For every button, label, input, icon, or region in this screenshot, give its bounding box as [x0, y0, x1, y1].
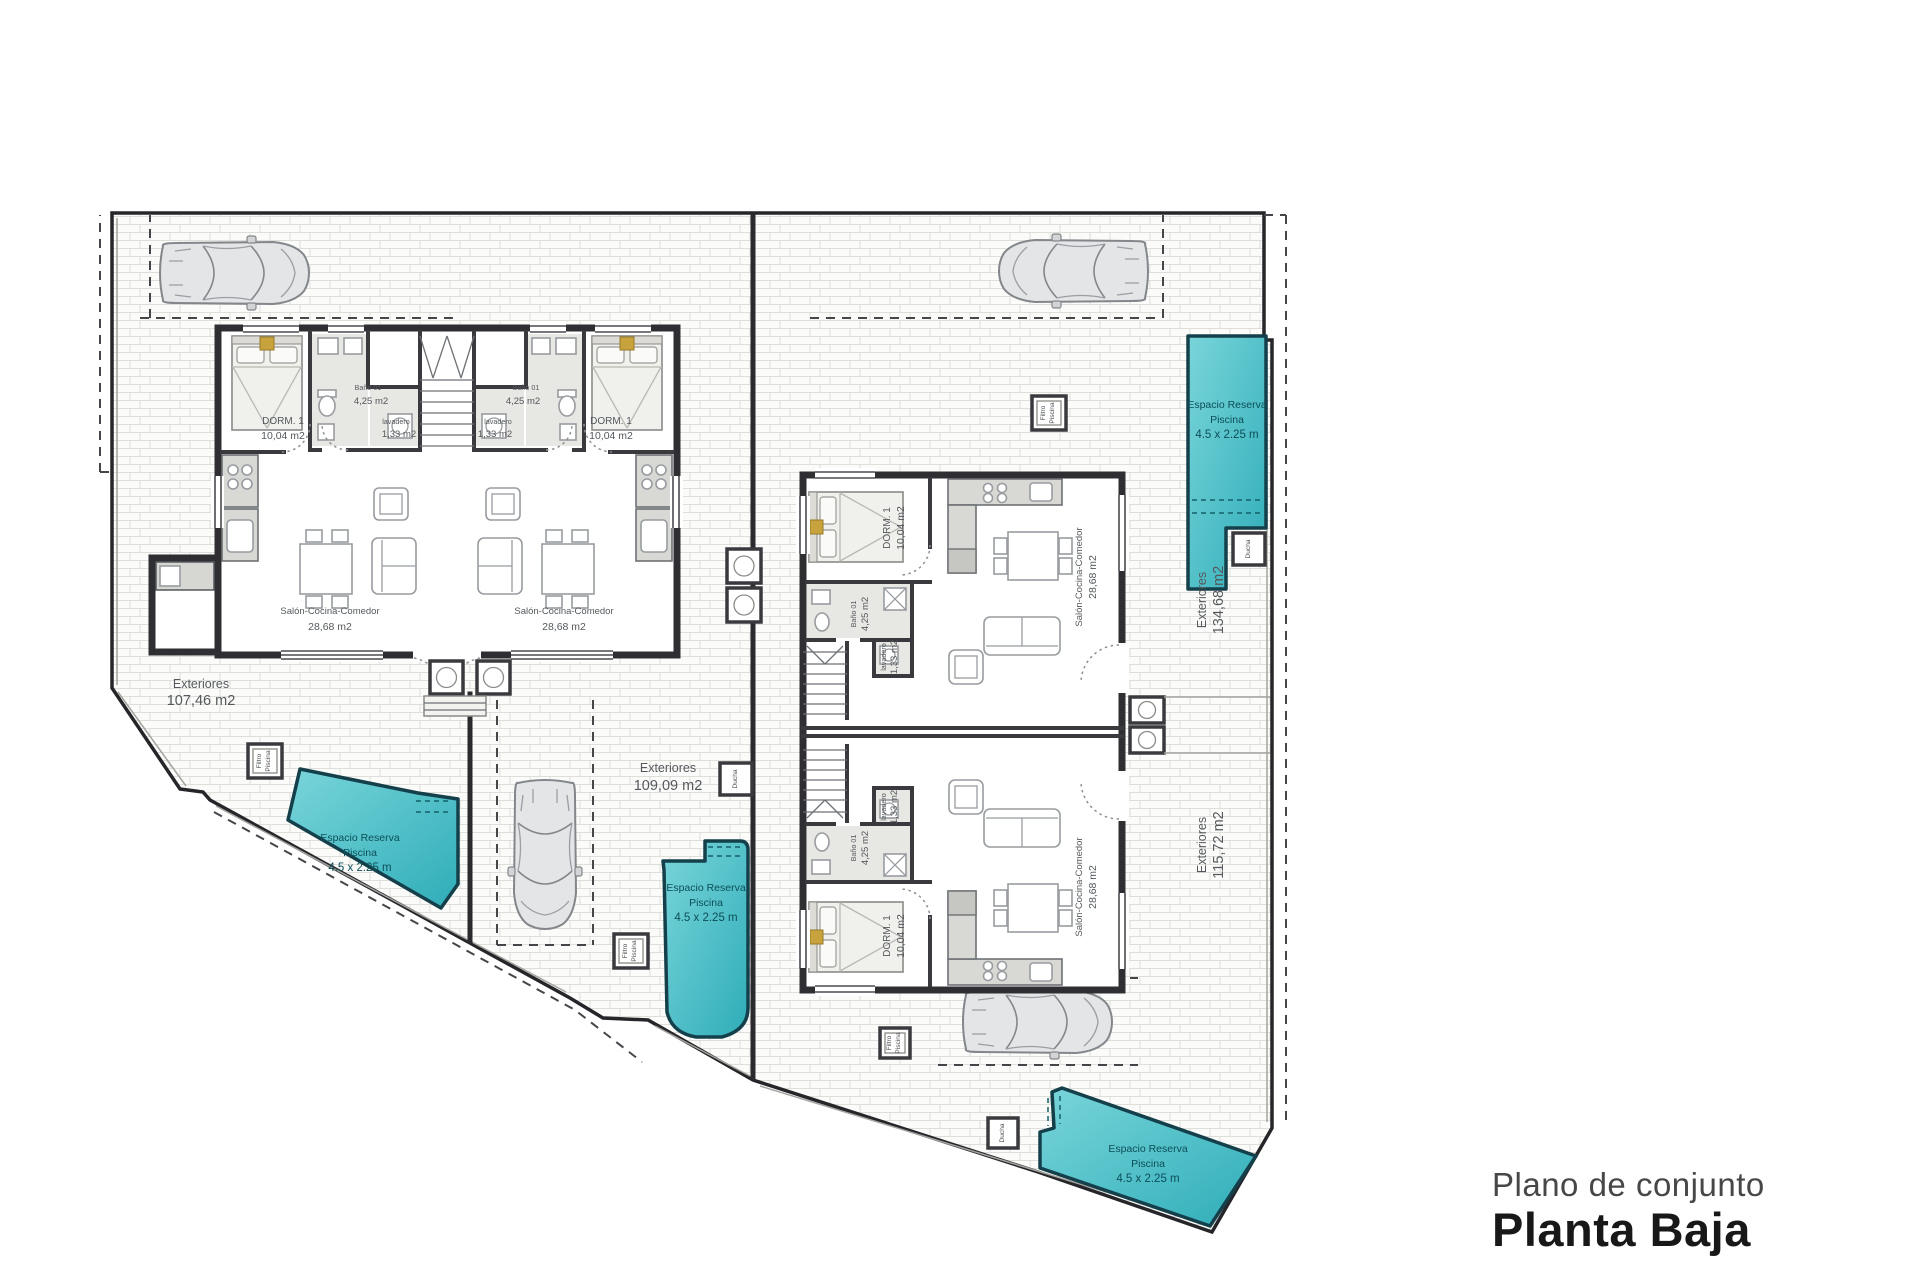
car-south: [963, 985, 1112, 1059]
svg-text:Filtro: Filtro: [256, 753, 263, 768]
svg-text:Exteriores: Exteriores: [1195, 817, 1209, 873]
svg-text:10,04 m2: 10,04 m2: [895, 506, 907, 550]
svg-text:Piscina: Piscina: [1210, 414, 1244, 426]
svg-text:lavadero: lavadero: [484, 417, 512, 426]
shower-box-east: Ducha: [1233, 533, 1265, 565]
svg-text:lavadero: lavadero: [879, 793, 888, 821]
svg-text:Piscina: Piscina: [895, 1032, 902, 1054]
svg-text:Filtro: Filtro: [1040, 405, 1047, 420]
svg-text:Baño 01: Baño 01: [355, 383, 382, 392]
plan-title: Planta Baja: [1492, 1203, 1751, 1256]
svg-text:Exteriores: Exteriores: [173, 677, 229, 691]
shower-box-center: Ducha: [720, 763, 752, 795]
svg-text:10,04 m2: 10,04 m2: [895, 914, 907, 958]
car-northwest: [160, 236, 309, 310]
svg-text:10,04 m2: 10,04 m2: [589, 430, 633, 442]
entry-steps-west-building: [424, 696, 486, 716]
svg-text:Espacio Reserva: Espacio Reserva: [1187, 399, 1267, 411]
title-block: Plano de conjunto Planta Baja: [1492, 1166, 1765, 1256]
svg-text:Baño 01: Baño 01: [849, 835, 858, 862]
site-plan-svg: Espacio Reserva Piscina 4.5 x 2.25 m Esp…: [0, 0, 1920, 1280]
svg-text:1,33 m2: 1,33 m2: [478, 429, 512, 440]
svg-text:Filtro: Filtro: [622, 943, 629, 958]
svg-text:Filtro: Filtro: [886, 1035, 893, 1050]
svg-text:1,33 m2: 1,33 m2: [889, 790, 900, 824]
pool-center: [663, 841, 748, 1037]
svg-text:DORM. 1: DORM. 1: [882, 915, 893, 957]
svg-text:Salón-Cocina-Comedor: Salón-Cocina-Comedor: [514, 606, 613, 617]
svg-text:Salón-Cocina-Comedor: Salón-Cocina-Comedor: [1074, 837, 1085, 936]
svg-text:4,25 m2: 4,25 m2: [860, 831, 871, 865]
exterior-label-unit2: Exteriores 109,09 m2: [634, 761, 703, 794]
svg-text:Espacio Reserva: Espacio Reserva: [320, 832, 400, 844]
plan-subtitle: Plano de conjunto: [1492, 1166, 1765, 1203]
svg-text:Piscina: Piscina: [1049, 402, 1056, 424]
svg-text:Piscina: Piscina: [1131, 1158, 1165, 1170]
svg-text:115,72 m2: 115,72 m2: [1211, 811, 1227, 878]
filter-box-southwest: Filtro Piscina: [248, 744, 282, 778]
svg-text:Ducha: Ducha: [1245, 539, 1252, 558]
svg-text:4.5 x 2.25 m: 4.5 x 2.25 m: [674, 912, 737, 924]
car-center: [508, 780, 582, 929]
svg-text:DORM. 1: DORM. 1: [262, 416, 304, 427]
svg-text:4,25 m2: 4,25 m2: [506, 396, 540, 407]
svg-text:Piscina: Piscina: [265, 750, 272, 772]
svg-text:DORM. 1: DORM. 1: [590, 416, 632, 427]
svg-text:Salón-Cocina-Comedor: Salón-Cocina-Comedor: [280, 606, 379, 617]
svg-text:lavadero: lavadero: [879, 643, 888, 671]
svg-text:Ducha: Ducha: [732, 769, 739, 788]
svg-text:Baño 01: Baño 01: [513, 383, 540, 392]
car-northeast: [999, 234, 1148, 308]
svg-text:1,33 m2: 1,33 m2: [382, 429, 416, 440]
svg-text:10,04 m2: 10,04 m2: [261, 430, 305, 442]
svg-text:107,46 m2: 107,46 m2: [167, 693, 236, 709]
svg-text:DORM. 1: DORM. 1: [882, 507, 893, 549]
svg-text:Exteriores: Exteriores: [640, 761, 696, 775]
svg-text:4,25 m2: 4,25 m2: [860, 597, 871, 631]
svg-text:134,68 m2: 134,68 m2: [1211, 566, 1227, 635]
svg-text:4.5 x 2.25 m: 4.5 x 2.25 m: [1116, 1173, 1179, 1185]
svg-text:Exteriores: Exteriores: [1195, 572, 1209, 628]
svg-text:Piscina: Piscina: [343, 847, 377, 859]
svg-text:Salón-Cocina-Comedor: Salón-Cocina-Comedor: [1074, 527, 1085, 626]
svg-text:28,68 m2: 28,68 m2: [1087, 865, 1099, 909]
exterior-label-unit4: Exteriores 115,72 m2: [1195, 811, 1227, 878]
svg-text:Ducha: Ducha: [999, 1123, 1006, 1142]
svg-text:109,09 m2: 109,09 m2: [634, 778, 703, 794]
filter-box-south: Filtro Piscina: [880, 1028, 910, 1058]
svg-text:4.5 x 2.25 m: 4.5 x 2.25 m: [328, 862, 391, 874]
svg-text:lavadero: lavadero: [382, 417, 410, 426]
filter-box-center: Filtro Piscina: [614, 934, 648, 968]
svg-text:Espacio Reserva: Espacio Reserva: [1108, 1143, 1188, 1155]
svg-text:4.5 x 2.25 m: 4.5 x 2.25 m: [1195, 429, 1258, 441]
svg-text:28,68 m2: 28,68 m2: [1087, 555, 1099, 599]
floor-plan-page: Espacio Reserva Piscina 4.5 x 2.25 m Esp…: [0, 0, 1920, 1280]
svg-text:Piscina: Piscina: [631, 940, 638, 962]
exterior-label-unit3: Exteriores 134,68 m2: [1195, 566, 1227, 635]
filter-box-northeast: Filtro Piscina: [1032, 396, 1066, 430]
svg-text:28,68 m2: 28,68 m2: [308, 621, 352, 633]
svg-text:1,33 m2: 1,33 m2: [889, 640, 900, 674]
svg-text:Baño 01: Baño 01: [849, 601, 858, 628]
shower-box-south: Ducha: [988, 1118, 1018, 1148]
exterior-label-unit1: Exteriores 107,46 m2: [167, 677, 236, 709]
svg-text:Piscina: Piscina: [689, 897, 723, 909]
svg-text:4,25 m2: 4,25 m2: [354, 396, 388, 407]
svg-text:Espacio Reserva: Espacio Reserva: [666, 882, 746, 894]
svg-text:28,68 m2: 28,68 m2: [542, 621, 586, 633]
